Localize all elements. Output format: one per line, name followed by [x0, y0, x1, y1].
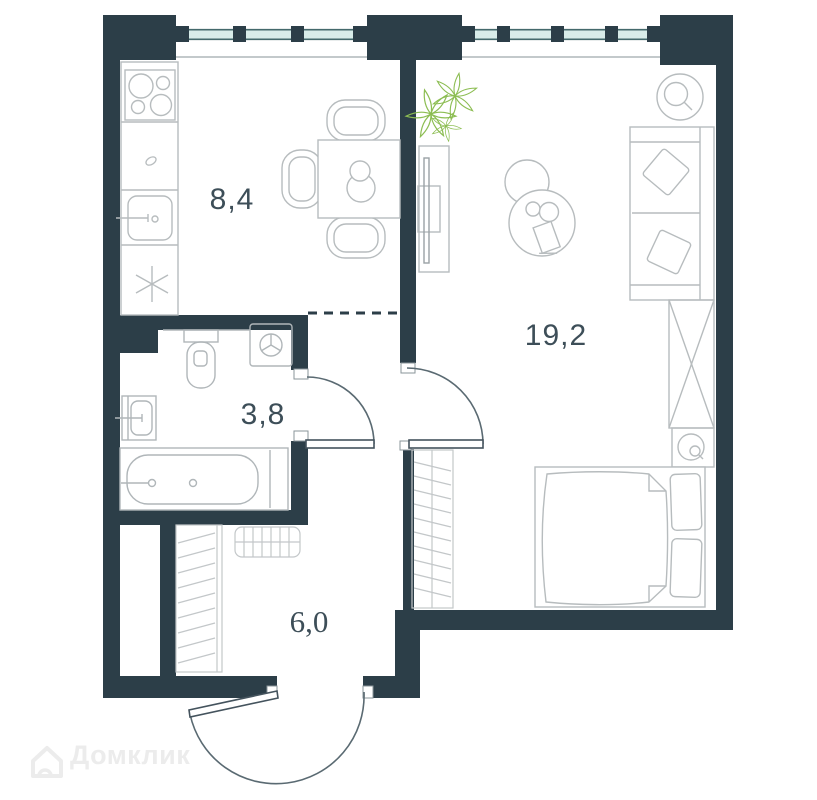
tv-icon [424, 158, 429, 263]
fridge-snowflake-icon [136, 266, 168, 302]
chair-icon [327, 217, 385, 258]
living-area-label: 19,2 [525, 319, 587, 353]
floor-lamp-icon [657, 74, 703, 120]
window-band-right [462, 26, 660, 57]
window-mullion [647, 26, 660, 42]
wash-basin-icon [115, 396, 156, 440]
floor-plan: 8,4 19,2 3,8 6,0 Домклик [0, 0, 817, 800]
watermark-text: Домклик [70, 740, 190, 771]
window-mullion [176, 26, 189, 42]
wall-bath-right-upper [291, 315, 308, 370]
wall-bath-shaft [120, 315, 158, 353]
door-leaf [409, 440, 483, 448]
toilet-icon [163, 330, 250, 388]
sofa-icon [630, 127, 714, 300]
window-mullion [605, 26, 618, 42]
hallway-area-label: 6,0 [290, 604, 329, 640]
window-mullion [551, 26, 564, 42]
door-leaf [306, 440, 374, 448]
window-mullion [497, 26, 510, 42]
wall-left [103, 15, 120, 698]
coffee-tables-icon [505, 160, 575, 259]
window-mullion [233, 26, 246, 42]
decanter-icon [350, 161, 370, 181]
wall-divider-bottom-block [395, 610, 420, 698]
bathtub-icon [120, 448, 288, 510]
entrance-door [189, 686, 373, 784]
hall-closet-icon [176, 525, 222, 672]
washing-machine-icon [250, 324, 292, 366]
wall-hall-niche [160, 525, 176, 676]
dining-set [282, 100, 400, 258]
wall-bottom-hall-left [103, 676, 277, 698]
nightstand-lamp-icon [672, 428, 714, 467]
wall-right [716, 15, 733, 630]
floor-plan-drawing [0, 0, 817, 800]
stove-icon [125, 70, 175, 120]
kitchen-sink-icon [116, 196, 172, 240]
living-room-door [400, 363, 483, 450]
door-arc-icon [407, 368, 483, 444]
wall-divider-upper [400, 55, 416, 363]
bed-pillow-icon [670, 473, 702, 530]
wall-bottom-bedroom [402, 610, 733, 630]
wall-bath-bottom [103, 510, 308, 525]
chair-icon [327, 100, 385, 141]
counter-drop-icon [144, 155, 157, 167]
double-bed-icon [535, 467, 705, 607]
window-mullion [353, 26, 367, 42]
plant-icon [406, 73, 478, 142]
window-mullion [462, 26, 475, 42]
bathroom-door [294, 369, 374, 448]
kitchen-area-label: 8,4 [210, 183, 255, 217]
chair-icon [282, 150, 322, 208]
tv-console-icon [418, 146, 449, 272]
living-closet-icon [412, 450, 453, 608]
bathroom-area-label: 3,8 [241, 398, 286, 432]
door-jamb [294, 369, 308, 379]
bed-pillow-icon [670, 538, 702, 597]
shoe-rack-icon [235, 527, 300, 557]
door-arc-icon [307, 377, 374, 444]
watermark: Домклик [28, 740, 190, 771]
window-band-left [176, 26, 367, 57]
wardrobe-x-icon [669, 300, 714, 428]
window-mullion [291, 26, 304, 42]
wall-top-pillar [367, 15, 462, 60]
wall-top-left-block [103, 15, 176, 60]
